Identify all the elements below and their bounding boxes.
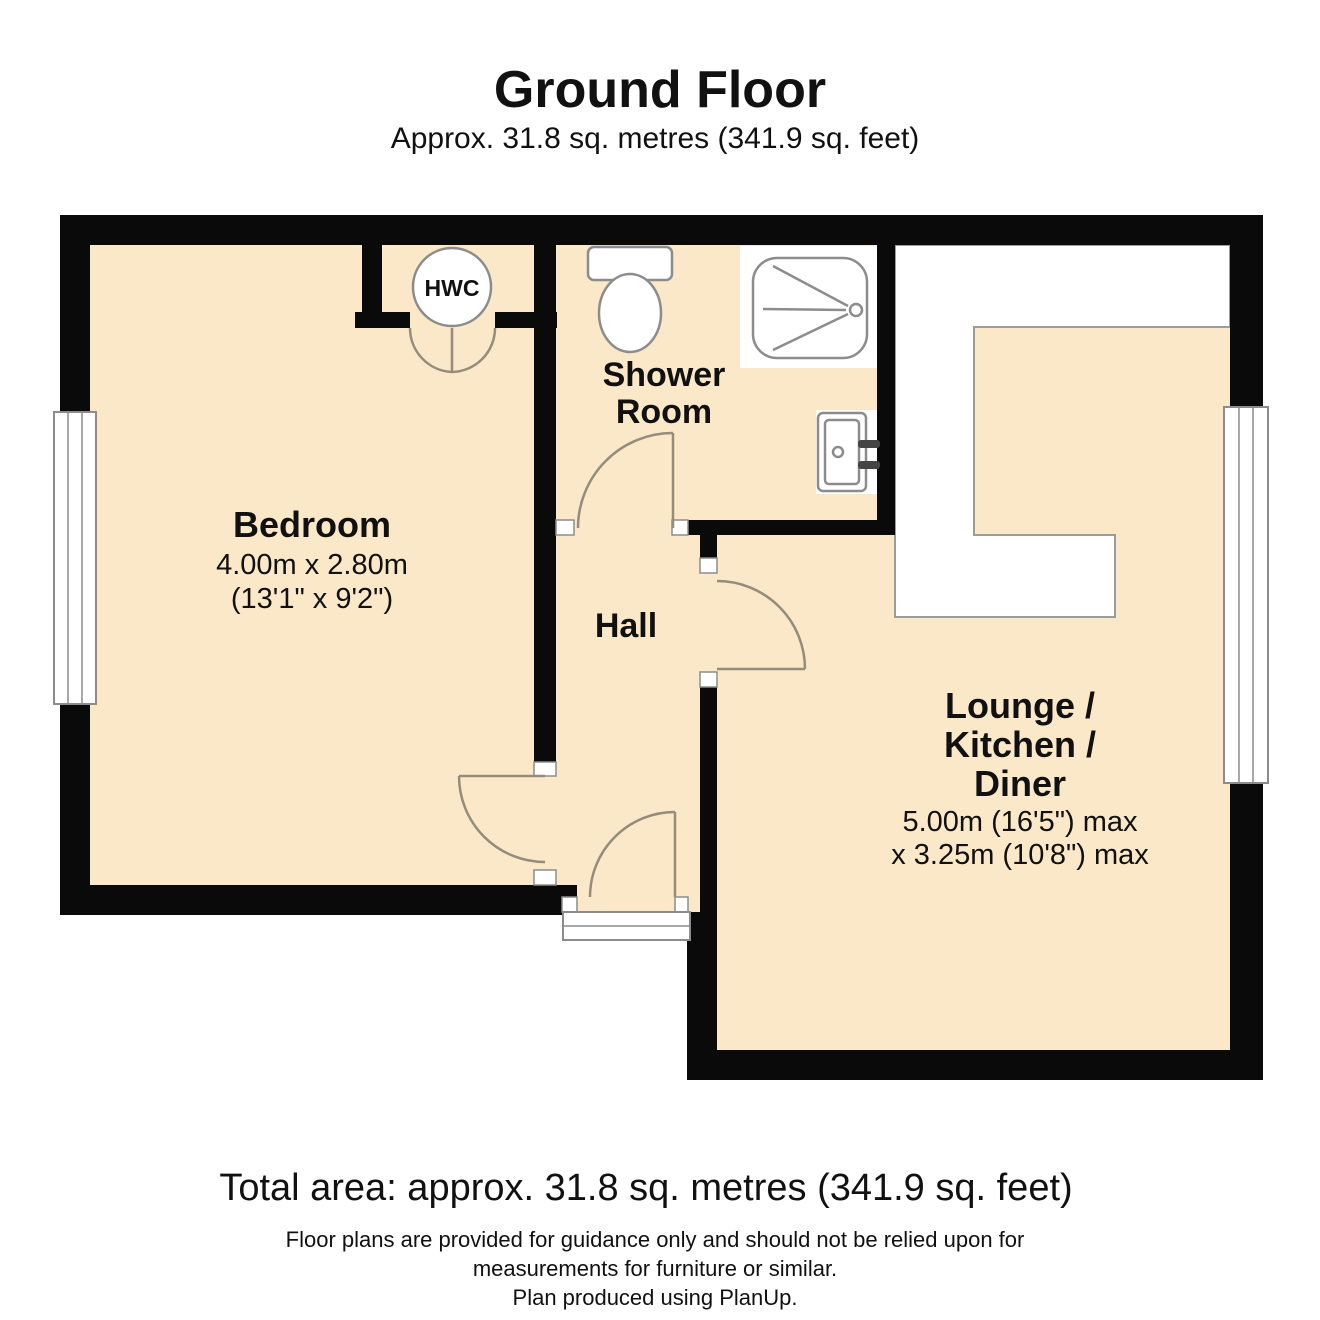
page-subtitle: Approx. 31.8 sq. metres (341.9 sq. feet) bbox=[391, 122, 920, 155]
shower-room-label-line2: Room bbox=[616, 393, 712, 431]
wall-shower-bottom bbox=[688, 520, 877, 535]
hwc-cylinder: HWC bbox=[413, 248, 491, 326]
lounge-window bbox=[1224, 407, 1268, 783]
wall-top bbox=[60, 215, 1263, 245]
wall-shower-right bbox=[877, 245, 895, 535]
basin-icon bbox=[816, 410, 880, 494]
shower-room-label-line1: Shower bbox=[603, 356, 726, 394]
shower-tray bbox=[740, 246, 877, 368]
disclaimer-line2: measurements for furniture or similar. bbox=[473, 1256, 837, 1281]
disclaimer-line3: Plan produced using PlanUp. bbox=[513, 1285, 798, 1310]
front-door-threshold bbox=[563, 912, 690, 940]
shower-door-jamb-left bbox=[556, 520, 574, 535]
wall-hwc-stub-right bbox=[495, 312, 557, 328]
header: Ground Floor Approx. 31.8 sq. metres (34… bbox=[391, 61, 920, 155]
lounge-dims-line1: 5.00m (16'5") max bbox=[902, 806, 1138, 838]
total-area-text: Total area: approx. 31.8 sq. metres (341… bbox=[219, 1167, 1072, 1209]
floorplan-canvas: Ground Floor Approx. 31.8 sq. metres (34… bbox=[0, 0, 1320, 1320]
wall-bedroom-bottom bbox=[60, 885, 577, 915]
footer: Total area: approx. 31.8 sq. metres (341… bbox=[219, 1167, 1072, 1310]
wall-right-upper bbox=[1230, 245, 1263, 407]
lounge-door-jamb-top bbox=[700, 558, 717, 573]
front-door-jamb-right bbox=[675, 897, 688, 912]
lounge-dims-line2: x 3.25m (10'8") max bbox=[891, 839, 1149, 871]
wall-hwc-left bbox=[362, 245, 382, 312]
wall-lounge-bottom bbox=[687, 1050, 1263, 1080]
lounge-door-jamb-bottom bbox=[700, 672, 717, 687]
bedroom-label: Bedroom bbox=[233, 504, 391, 545]
lounge-label-line3: Diner bbox=[974, 763, 1066, 804]
bedroom-door-jamb-top bbox=[534, 762, 556, 776]
disclaimer-line1: Floor plans are provided for guidance on… bbox=[286, 1227, 1025, 1252]
wall-lounge-left-exterior bbox=[687, 912, 717, 1080]
floorplan-page: Ground Floor Approx. 31.8 sq. metres (34… bbox=[0, 0, 1320, 1320]
bedroom-door-jamb-bottom bbox=[534, 870, 556, 885]
shower-door-jamb-right bbox=[672, 520, 688, 535]
hwc-label: HWC bbox=[425, 275, 480, 301]
page-title: Ground Floor bbox=[494, 61, 826, 119]
hall-label: Hall bbox=[595, 607, 657, 645]
lounge-label-line2: Kitchen / bbox=[944, 724, 1096, 765]
bedroom-dims-imperial: (13'1" x 9'2") bbox=[231, 583, 393, 615]
shower-drain-icon bbox=[850, 304, 862, 316]
wall-left-lower bbox=[60, 704, 90, 915]
lounge-label-line1: Lounge / bbox=[945, 685, 1095, 726]
wall-hall-lounge-stub bbox=[700, 535, 717, 558]
wall-left-upper bbox=[60, 245, 90, 412]
basin-tap-icon bbox=[858, 461, 880, 469]
wall-hall-lounge-lower bbox=[700, 687, 717, 912]
wall-right-lower bbox=[1230, 783, 1263, 1080]
front-door-jamb-left bbox=[562, 897, 577, 912]
bedroom-window bbox=[54, 412, 96, 704]
basin-tap-icon bbox=[858, 440, 880, 448]
wall-hwc-stub-left bbox=[355, 312, 410, 328]
bedroom-dims-metric: 4.00m x 2.80m bbox=[216, 549, 408, 581]
